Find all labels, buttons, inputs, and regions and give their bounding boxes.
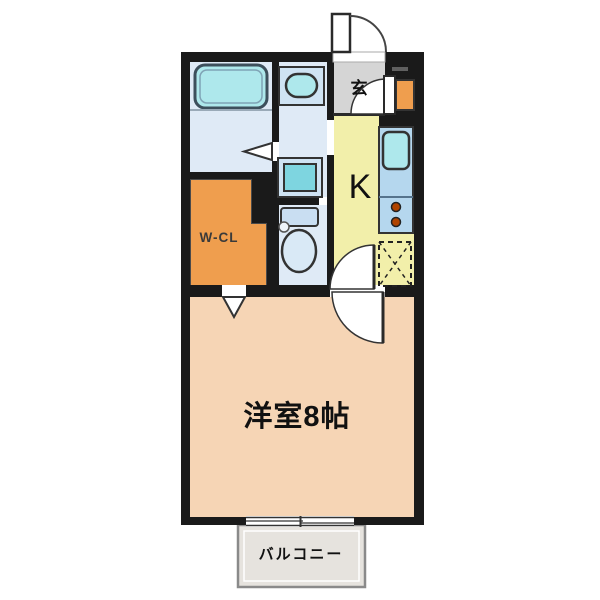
balcony-label: バルコニー bbox=[259, 546, 344, 563]
washing-machine bbox=[284, 164, 316, 191]
closet-door-opening bbox=[222, 285, 246, 297]
bathtub bbox=[195, 65, 267, 108]
wall-washroom-kitchen-lower bbox=[327, 155, 334, 288]
wall-bath-closet bbox=[181, 172, 279, 179]
kitchen-sink bbox=[383, 132, 409, 169]
shoe-cabinet bbox=[396, 80, 414, 110]
main-room-label: 洋室8帖 bbox=[243, 399, 350, 433]
toilet-hand-wash bbox=[279, 222, 289, 232]
stove-burner-icon bbox=[392, 203, 401, 212]
sliding-window bbox=[246, 516, 354, 527]
walk-in-closet-label: W-CL bbox=[200, 230, 239, 245]
entrance-door-swing-arc bbox=[350, 16, 386, 52]
toilet-bowl bbox=[282, 230, 316, 272]
wall-washroom-toilet bbox=[272, 197, 319, 205]
stove-burner-icon bbox=[392, 218, 401, 227]
washroom-door-opening bbox=[327, 120, 334, 155]
wall-bottom-right bbox=[354, 517, 424, 525]
kitchen-label: K bbox=[349, 168, 372, 206]
entrance-label: 玄 bbox=[351, 78, 368, 98]
wall-top-left bbox=[181, 52, 333, 62]
wall-bath-washroom-upper bbox=[272, 62, 279, 142]
entrance-opening bbox=[333, 52, 385, 62]
washbasin-sink bbox=[286, 74, 317, 97]
genkan-door-leaf bbox=[384, 76, 395, 114]
entrance-door-leaf bbox=[332, 14, 350, 52]
wall-bottom-left bbox=[181, 517, 246, 525]
wall-watermark-mark bbox=[392, 67, 408, 71]
floor-plan-canvas: 玄 K W-CL 洋室8帖 バルコニー bbox=[0, 0, 600, 600]
floor-plan-drawing: 玄 K W-CL 洋室8帖 バルコニー bbox=[0, 0, 600, 600]
wall-washroom-kitchen-upper bbox=[327, 62, 334, 120]
